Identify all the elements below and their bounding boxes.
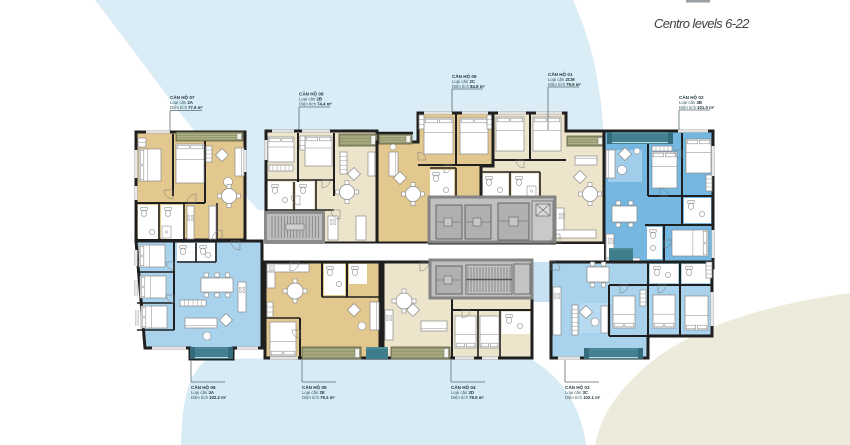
svg-text:CĂN HỘ 03: CĂN HỘ 03 — [565, 383, 590, 390]
svg-text:Diện tích 74.4 m²: Diện tích 74.4 m² — [299, 102, 333, 107]
svg-text:CĂN HỘ 02: CĂN HỘ 02 — [679, 93, 704, 100]
svg-text:CĂN HỘ 07: CĂN HỘ 07 — [170, 93, 195, 100]
svg-text:Diện tích 79.9 m²: Diện tích 79.9 m² — [548, 82, 582, 87]
svg-text:CĂN HỘ 01: CĂN HỘ 01 — [548, 70, 573, 77]
svg-text:Diện tích 78.5 m²: Diện tích 78.5 m² — [451, 395, 485, 400]
svg-text:CĂN HỘ 09: CĂN HỘ 09 — [452, 72, 477, 79]
svg-text:Diện tích 102.1 m²: Diện tích 102.1 m² — [565, 395, 601, 400]
svg-text:Diện tích 102.2 m²: Diện tích 102.2 m² — [191, 395, 227, 400]
svg-text:Diện tích 84.8 m²: Diện tích 84.8 m² — [452, 84, 486, 89]
svg-text:CĂN HỘ 06: CĂN HỘ 06 — [191, 383, 216, 390]
svg-text:Centro levels 6-22: Centro levels 6-22 — [654, 16, 750, 31]
svg-text:CĂN HỘ 05: CĂN HỘ 05 — [302, 383, 327, 390]
svg-text:CĂN HỘ 08: CĂN HỘ 08 — [299, 90, 324, 97]
svg-text:Diện tích 101.0 m²: Diện tích 101.0 m² — [679, 105, 715, 110]
svg-text:Diện tích 77.6 m²: Diện tích 77.6 m² — [170, 105, 204, 110]
svg-text:Diện tích 79.2 m²: Diện tích 79.2 m² — [302, 395, 336, 400]
svg-text:CĂN HỘ 04: CĂN HỘ 04 — [451, 383, 476, 390]
